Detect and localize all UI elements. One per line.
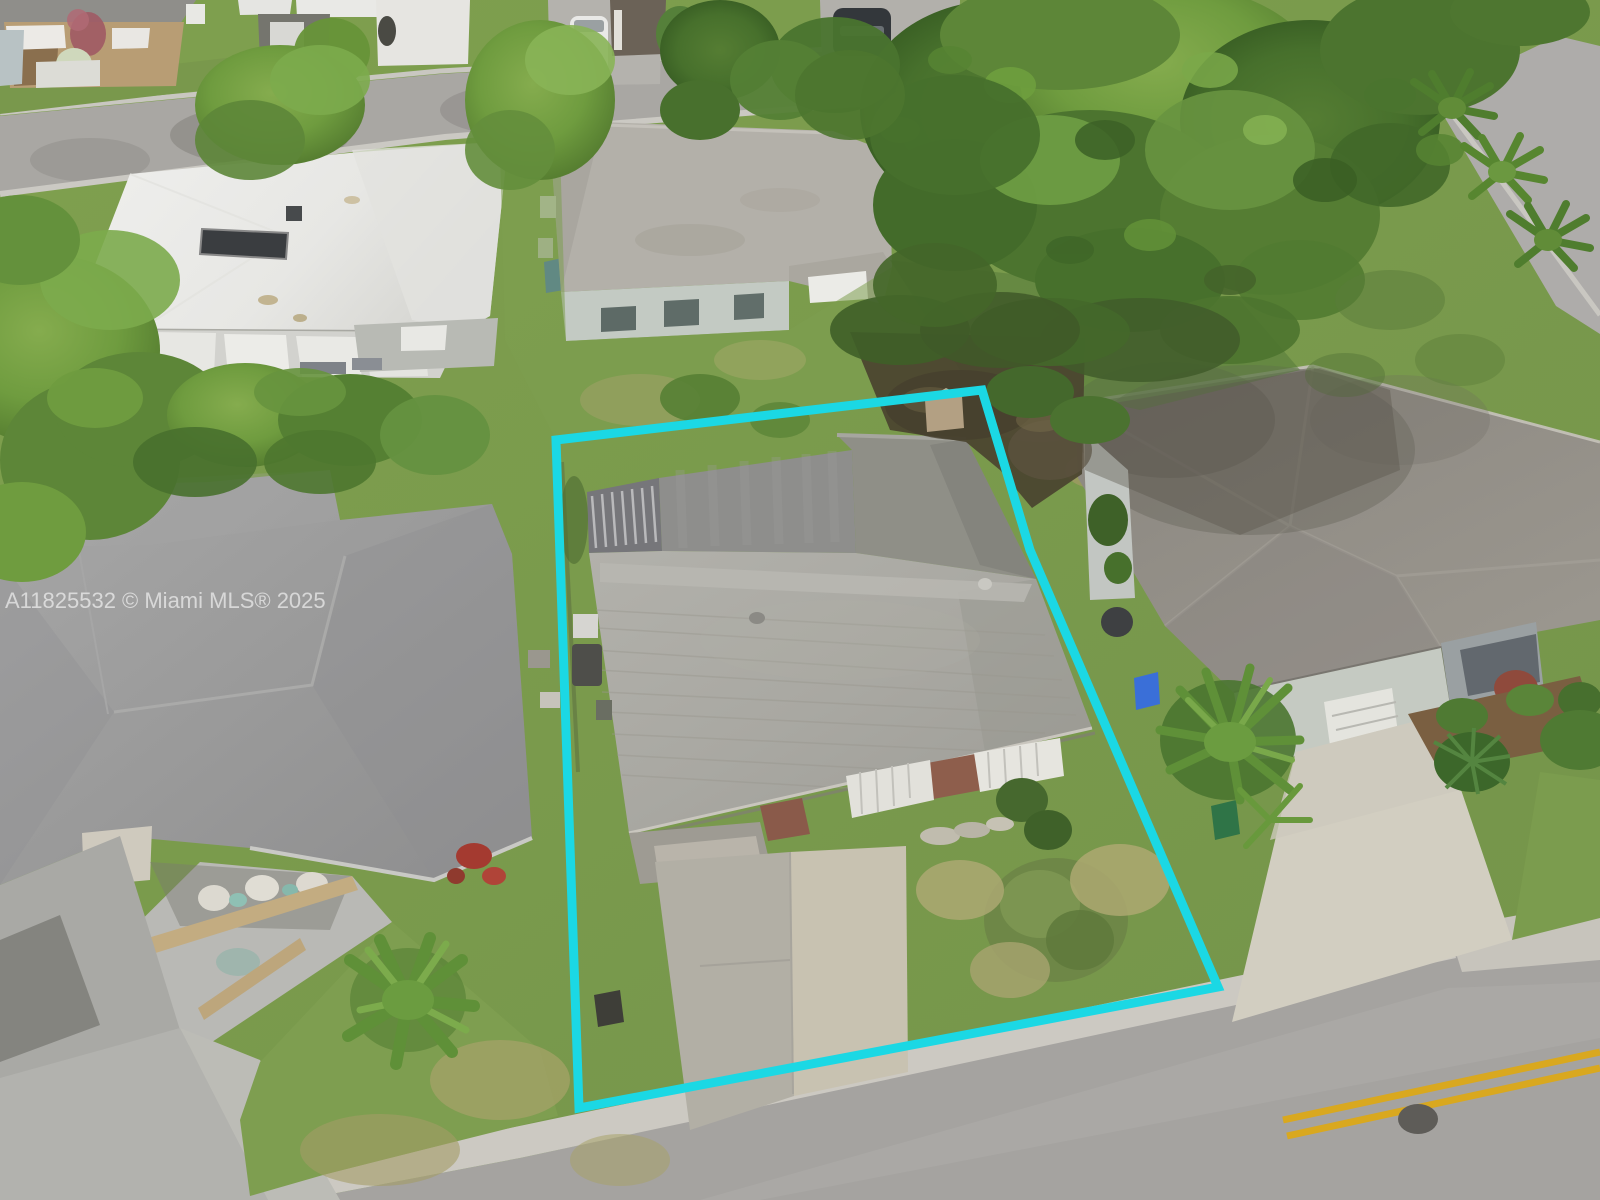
svg-text:A11825532 © Miami MLS® 2025: A11825532 © Miami MLS® 2025 xyxy=(5,588,326,613)
